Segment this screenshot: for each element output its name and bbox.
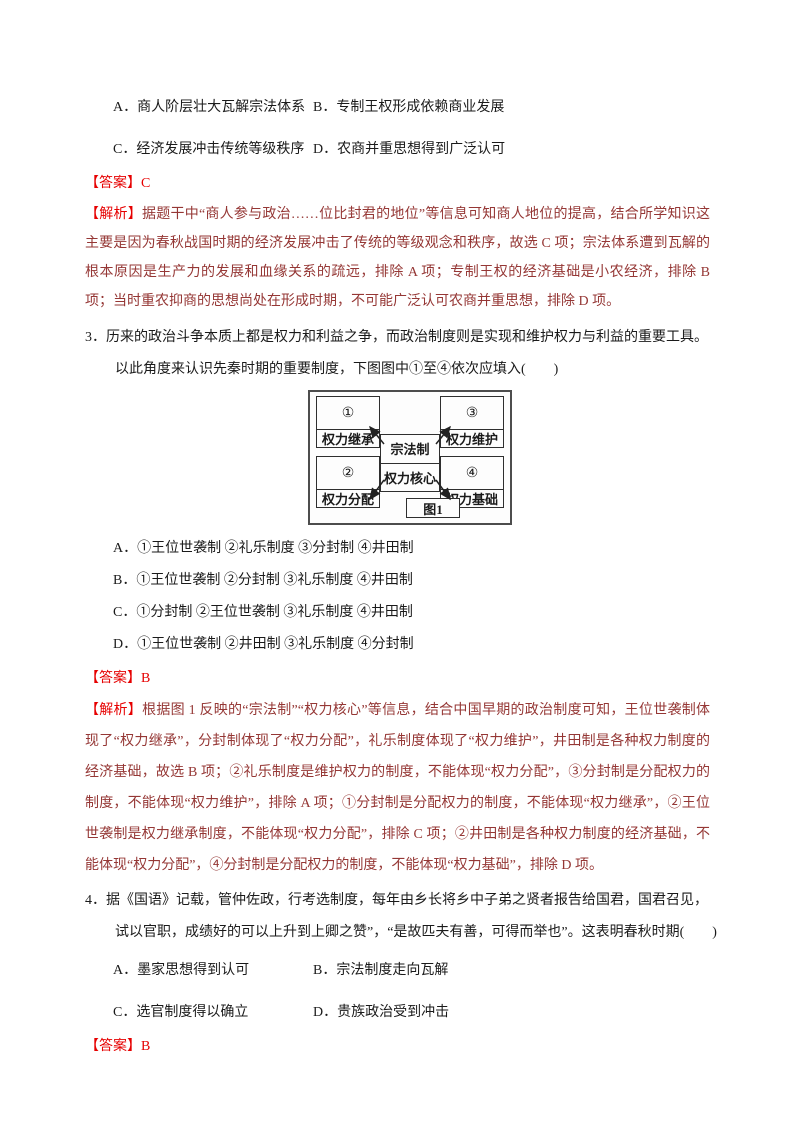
- q4-option-b: B．宗法制度走向瓦解: [313, 961, 710, 981]
- diagram-center-title: 宗法制: [381, 435, 439, 464]
- q2-option-a: A．商人阶层壮大瓦解宗法体系: [113, 98, 313, 118]
- circled-number-2: ②: [317, 457, 379, 489]
- circled-number-4: ④: [441, 457, 503, 489]
- q4-stem: 4．据《国语》记载，管仲佐政，行考选制度，每年由乡长将乡中子弟之贤者报告给国君，…: [85, 885, 710, 949]
- q3-option-a: A．①王位世袭制 ②礼乐制度 ③分封制 ④井田制: [113, 539, 710, 559]
- circled-number-1: ①: [317, 397, 379, 429]
- q3-stem-line2: 以此角度来认识先秦时期的重要制度，下图图中①至④依次应填入( ): [85, 354, 710, 386]
- q3-answer-label: 【答案】: [85, 671, 141, 686]
- q3-analysis-label: 【解析】: [85, 703, 142, 718]
- q2-analysis: 【解析】据题干中“商人参与政治……位比封君的地位”等信息可知商人地位的提高，结合…: [85, 200, 710, 316]
- q2-option-c: C．经济发展冲击传统等级秩序: [113, 140, 313, 160]
- q3-answer-line: 【答案】B: [85, 669, 710, 689]
- diagram-label-power-maintain: 权力维护: [441, 429, 503, 447]
- q4-answer-label: 【答案】: [85, 1039, 141, 1054]
- diagram-box-2: ② 权力分配: [316, 456, 380, 508]
- q3-stem: 3．历来的政治斗争本质上都是权力和利益之争，而政治制度则是实现和维护权力与利益的…: [85, 322, 710, 386]
- q4-option-d: D．贵族政治受到冲击: [313, 1003, 710, 1023]
- q3-analysis: 【解析】根据图 1 反映的“宗法制”“权力核心”等信息，结合中国早期的政治制度可…: [85, 695, 710, 881]
- q3-answer-value: B: [141, 671, 150, 686]
- diagram-box-1: ① 权力继承: [316, 396, 380, 448]
- q3-option-b: B．①王位世袭制 ②分封制 ③礼乐制度 ④井田制: [113, 571, 710, 591]
- q2-answer-line: 【答案】C: [85, 174, 710, 194]
- q2-answer-label: 【答案】: [85, 176, 141, 191]
- q3-option-d: D．①王位世袭制 ②井田制 ③礼乐制度 ④分封制: [113, 635, 710, 655]
- circled-number-3: ③: [441, 397, 503, 429]
- q4-answer-value: B: [141, 1039, 150, 1054]
- q4-option-a: A．墨家思想得到认可: [113, 961, 313, 981]
- q3-analysis-text: 根据图 1 反映的“宗法制”“权力核心”等信息，结合中国早期的政治制度可知，王位…: [85, 703, 710, 873]
- diagram-label-power-distribute: 权力分配: [317, 489, 379, 507]
- q4-option-c: C．选官制度得以确立: [113, 1003, 313, 1023]
- q4-stem-line2: 试以官职，成绩好的可以上升到上卿之赞”，“是故匹夫有善，可得而举也”。这表明春秋…: [85, 917, 710, 949]
- q3-stem-text1: 历来的政治斗争本质上都是权力和利益之争，而政治制度则是实现和维护权力与利益的重要…: [106, 330, 708, 345]
- diagram-label-power-inherit: 权力继承: [317, 429, 379, 447]
- q4-number: 4．: [85, 893, 106, 908]
- figure1-wrapper: ① 权力继承 ② 权力分配 ③ 权力维护 ④ 权力基础 宗法制 权力核心: [85, 390, 710, 525]
- q2-analysis-text: 据题干中“商人参与政治……位比封君的地位”等信息可知商人地位的提高，结合所学知识…: [85, 207, 710, 309]
- question4-block: 4．据《国语》记载，管仲佐政，行考选制度，每年由乡长将乡中子弟之贤者报告给国君，…: [85, 885, 710, 1057]
- diagram-box-3: ③ 权力维护: [440, 396, 504, 448]
- question3-block: 3．历来的政治斗争本质上都是权力和利益之争，而政治制度则是实现和维护权力与利益的…: [85, 322, 710, 881]
- figure1-diagram: ① 权力继承 ② 权力分配 ③ 权力维护 ④ 权力基础 宗法制 权力核心: [308, 390, 512, 525]
- q2-options-grid: A．商人阶层壮大瓦解宗法体系 B．专制王权形成依赖商业发展 C．经济发展冲击传统…: [85, 98, 710, 160]
- q4-stem-line1: 4．据《国语》记载，管仲佐政，行考选制度，每年由乡长将乡中子弟之贤者报告给国君，…: [85, 885, 710, 917]
- q3-option-c: C．①分封制 ②王位世袭制 ③礼乐制度 ④井田制: [113, 603, 710, 623]
- q2-option-d: D．农商并重思想得到广泛认可: [313, 140, 710, 160]
- diagram-center-box: 宗法制 权力核心: [380, 434, 440, 492]
- q3-options-list: A．①王位世袭制 ②礼乐制度 ③分封制 ④井田制 B．①王位世袭制 ②分封制 ③…: [85, 539, 710, 655]
- diagram-caption: 图1: [406, 498, 460, 518]
- q4-answer-line: 【答案】B: [85, 1037, 710, 1057]
- diagram-center-subtitle: 权力核心: [381, 464, 439, 492]
- q2-analysis-label: 【解析】: [85, 207, 142, 222]
- q3-stem-line1: 3．历来的政治斗争本质上都是权力和利益之争，而政治制度则是实现和维护权力与利益的…: [85, 322, 710, 354]
- question2-block: A．商人阶层壮大瓦解宗法体系 B．专制王权形成依赖商业发展 C．经济发展冲击传统…: [85, 98, 710, 316]
- q2-answer-value: C: [141, 176, 150, 191]
- q2-option-b: B．专制王权形成依赖商业发展: [313, 98, 710, 118]
- q3-number: 3．: [85, 330, 106, 345]
- q4-stem-text1: 据《国语》记载，管仲佐政，行考选制度，每年由乡长将乡中子弟之贤者报告给国君，国君…: [106, 893, 708, 908]
- q4-options-grid: A．墨家思想得到认可 B．宗法制度走向瓦解 C．选官制度得以确立 D．贵族政治受…: [85, 961, 710, 1023]
- exam-page: A．商人阶层壮大瓦解宗法体系 B．专制王权形成依赖商业发展 C．经济发展冲击传统…: [0, 0, 794, 1123]
